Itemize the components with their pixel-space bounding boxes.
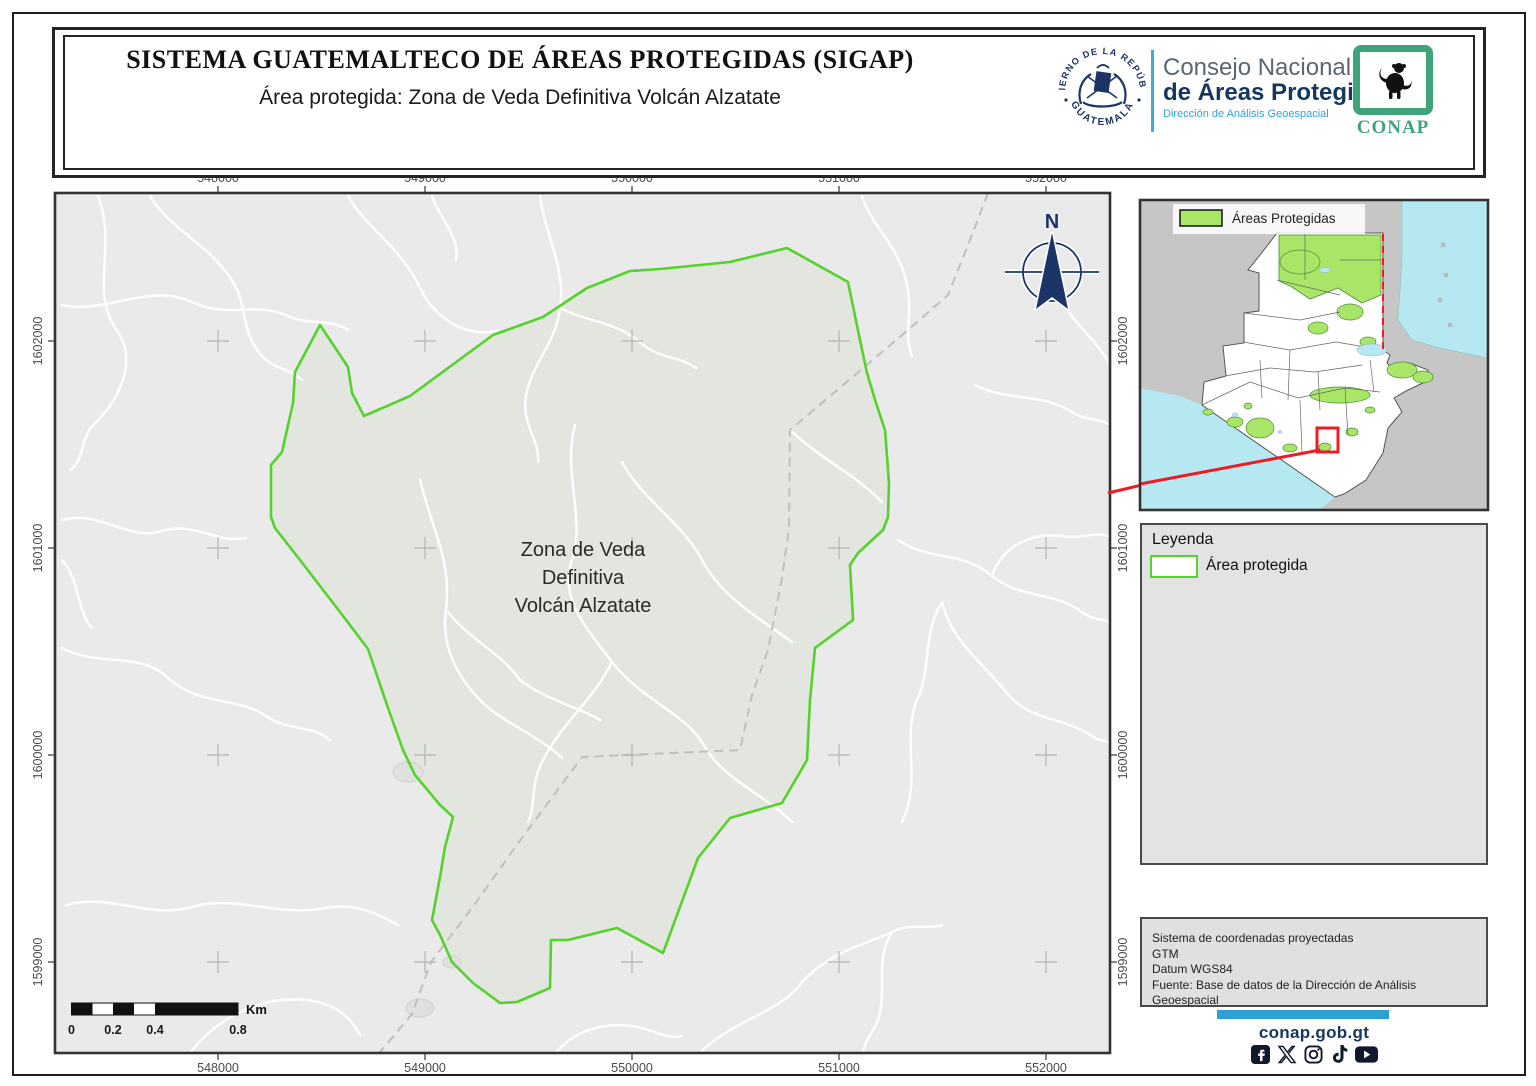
protected-areas-green [1387, 362, 1417, 378]
x-axis-label: 552000 [1025, 1061, 1067, 1075]
y-axis-label: 1599000 [31, 938, 45, 987]
footer-accent-bar [1217, 1010, 1389, 1019]
scale-unit: Km [246, 1002, 267, 1017]
protected-areas-green [1244, 403, 1252, 409]
area-label: Definitiva [542, 567, 625, 589]
protected-areas-green [1413, 371, 1433, 383]
protected-areas-green [1319, 443, 1331, 451]
header-divider [1151, 50, 1154, 132]
area-label: Zona de Veda [521, 539, 646, 561]
website-link[interactable]: conap.gob.gt [1140, 1023, 1488, 1043]
tiktok-icon[interactable] [1330, 1044, 1348, 1064]
scale-label: 0.2 [104, 1023, 121, 1037]
protected-areas-green [1280, 250, 1320, 274]
scale-label: 0.8 [229, 1023, 246, 1037]
scale-label: 0 [68, 1023, 75, 1037]
monkey-icon [1369, 59, 1417, 101]
x-axis-label: 550000 [611, 1061, 653, 1075]
instagram-icon[interactable] [1304, 1045, 1323, 1064]
y-axis-label: 1602000 [1116, 317, 1130, 366]
protected-areas-green [1365, 407, 1375, 413]
x-axis-label: 551000 [818, 1061, 860, 1075]
protected-areas-green [1227, 417, 1243, 427]
conap-logo-frame [1353, 45, 1433, 115]
conap-logo: CONAP [1353, 45, 1433, 139]
credits-line: Sistema de coordenadas proyectadas [1152, 931, 1476, 947]
government-seal: GOBIERNO DE LA REPÚBLICA GUATEMALA [1053, 42, 1152, 141]
legend-title: Leyenda [1152, 531, 1213, 549]
protected-areas-green [1246, 418, 1274, 438]
caribbean-sea [1398, 200, 1488, 358]
legend-panel: Leyenda Área protegida [1140, 523, 1488, 865]
lake [1319, 268, 1331, 273]
conap-logo-text: CONAP [1353, 117, 1433, 139]
page-title: SISTEMA GUATEMALTECO DE ÁREAS PROTEGIDAS… [70, 45, 970, 75]
inset-legend-label: Áreas Protegidas [1232, 211, 1336, 226]
seal-emblem [1079, 65, 1125, 107]
y-axis-label: 1600000 [1116, 731, 1130, 780]
page-subtitle: Área protegida: Zona de Veda Definitiva … [70, 86, 970, 110]
lake [1232, 413, 1238, 417]
x-axis-label: 549000 [404, 1061, 446, 1075]
protected-areas-green [1283, 444, 1297, 452]
facebook-icon[interactable] [1251, 1045, 1270, 1064]
lake [1278, 431, 1282, 434]
area-label: Volcán Alzatate [515, 595, 652, 617]
y-axis-label: 1601000 [31, 524, 45, 573]
settlement-area [406, 999, 434, 1017]
inset-map: Áreas Protegidas [1140, 200, 1488, 510]
scale-label: 0.4 [146, 1023, 163, 1037]
protected-areas-green [1337, 304, 1363, 320]
credits-line: GTM [1152, 947, 1476, 963]
x-axis-label: 548000 [197, 1061, 239, 1075]
y-axis-label: 1600000 [31, 731, 45, 780]
protected-area-swatch [1150, 555, 1198, 578]
credits-line: Fuente: Base de datos de la Dirección de… [1152, 978, 1476, 1009]
legend-item-label: Área protegida [1206, 557, 1308, 575]
y-axis-label: 1602000 [31, 317, 45, 366]
inset-legend-swatch [1180, 210, 1222, 226]
protected-areas-green [1203, 409, 1213, 415]
credits-panel: Sistema de coordenadas proyectadas GTM D… [1140, 917, 1488, 1007]
x-icon[interactable] [1277, 1045, 1297, 1064]
y-axis-label: 1601000 [1116, 524, 1130, 573]
social-icons-row [1140, 1044, 1488, 1064]
north-label: N [1045, 211, 1059, 233]
credits-line: Datum WGS84 [1152, 962, 1476, 978]
youtube-icon[interactable] [1355, 1046, 1378, 1063]
seal-bottom-text: GUATEMALA [1068, 99, 1137, 128]
protected-areas-green [1308, 322, 1328, 334]
main-map: Zona de VedaDefinitivaVolcán AlzatateNKm… [55, 193, 1110, 1053]
y-axis-label: 1599000 [1116, 938, 1130, 987]
